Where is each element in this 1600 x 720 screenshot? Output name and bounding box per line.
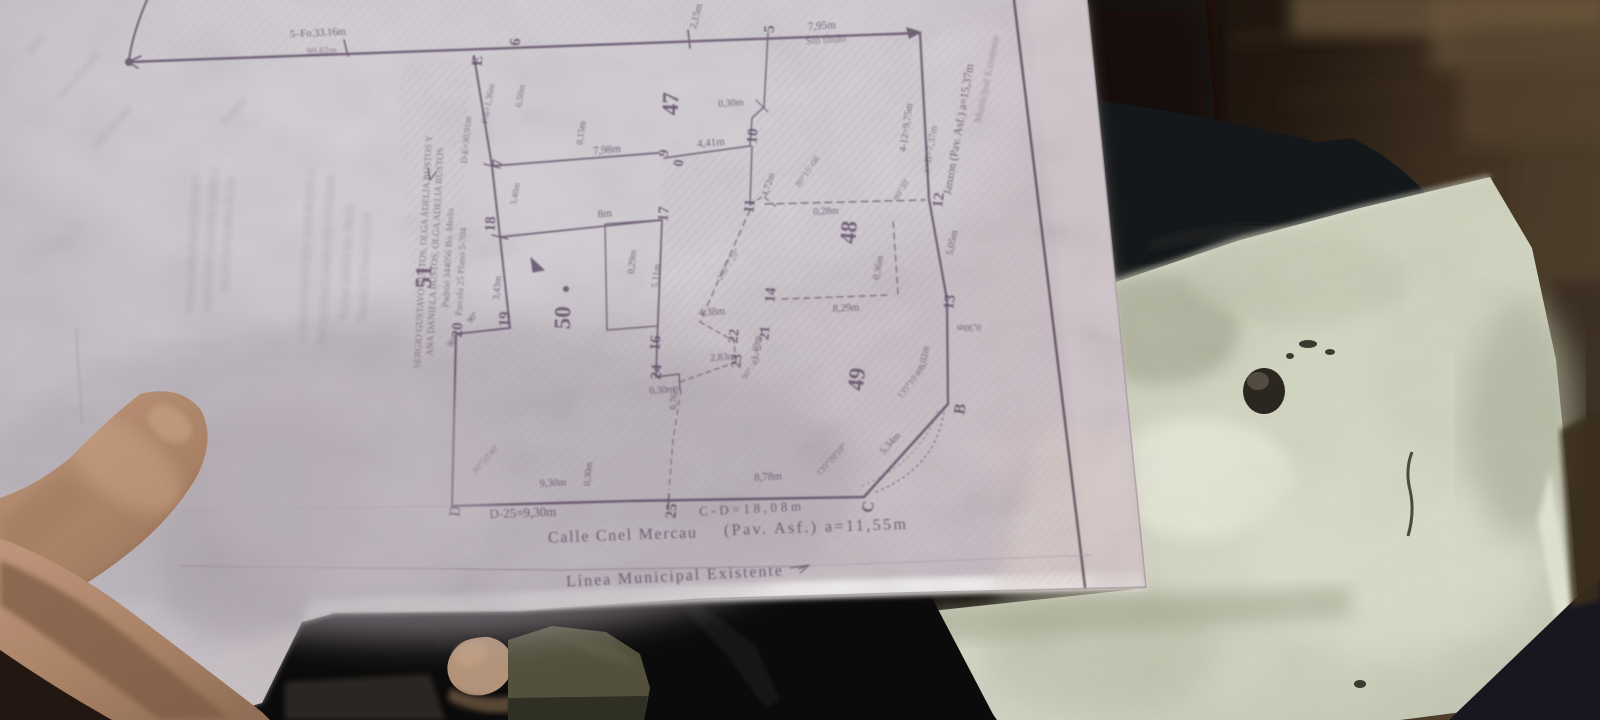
svg-text:13: 13 [941,294,959,311]
svg-text:17: 17 [655,205,672,222]
svg-text:14: 14 [762,286,779,303]
svg-text:E: E [470,56,486,67]
svg-text:3,43m: 3,43m [492,275,504,300]
svg-text:11: 11 [741,198,758,214]
svg-text:2,83m: 2,83m [710,351,736,364]
svg-text:0,30m: 0,30m [956,322,981,333]
svg-text:D-25=9,30m: D-25=9,30m [489,504,556,521]
svg-text:22: 22 [726,329,742,344]
svg-text:25: 25 [663,503,680,519]
svg-text:10: 10 [744,128,761,144]
svg-text:9,30m: 9,30m [539,477,566,489]
svg-text:4,38m: 4,38m [698,306,725,319]
svg-text:18: 18 [483,216,500,232]
svg-text:7,95m: 7,95m [807,19,836,33]
svg-text:8,29m: 8,29m [832,302,859,314]
svg-text:8m: 8m [597,207,612,220]
svg-text:50: 50 [550,306,576,330]
svg-text:6: 6 [508,37,524,46]
svg-text:24: 24 [648,363,665,380]
svg-text:16: 16 [647,334,664,351]
svg-text:0: 0 [672,159,688,167]
svg-text:7,98m: 7,98m [593,143,622,157]
svg-text:0,30m: 0,30m [718,97,744,110]
svg-text:99,62m: 99,62m [306,45,337,58]
svg-text:8,78m: 8,78m [754,470,783,483]
svg-text:4,41m: 4,41m [697,136,726,150]
svg-text:48: 48 [835,220,862,245]
svg-text:7: 7 [490,159,506,168]
svg-text:0,28m: 0,28m [813,205,839,217]
svg-text:19: 19 [497,311,514,327]
svg-text:5: 5 [762,25,779,34]
svg-text:49: 49 [843,366,870,391]
svg-text:47: 47 [658,92,684,116]
svg-text:9: 9 [657,149,673,157]
